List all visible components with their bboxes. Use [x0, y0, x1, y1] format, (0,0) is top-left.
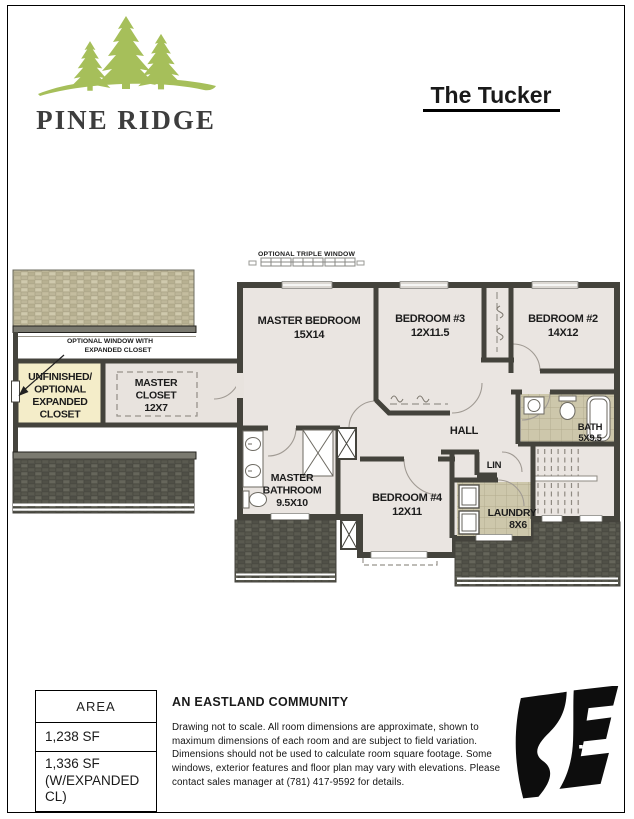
stair-landing-rail — [535, 476, 597, 481]
bedroom4-label: BEDROOM #4 — [372, 492, 443, 504]
area-table: AREA 1,238 SF 1,336 SF (W/EXPANDED CL) — [35, 690, 157, 812]
unfinished-closet-line2: OPTIONAL — [34, 384, 87, 396]
pine-ridge-logo: PINE RIDGE — [26, 12, 226, 136]
plan-title: The Tucker — [388, 82, 594, 109]
bedroom3-label: BEDROOM #3 — [395, 313, 465, 325]
laundry-dims: 8X6 — [509, 519, 527, 531]
unfinished-closet-line4: CLOSET — [40, 409, 82, 421]
community-heading: AN EASTLAND COMMUNITY — [172, 695, 348, 709]
master-bedroom-dims: 15X14 — [294, 329, 325, 341]
hall-label: HALL — [450, 425, 479, 437]
area-table-header: AREA — [36, 691, 156, 723]
bath-sink-bowl — [528, 400, 540, 412]
brand-name: PINE RIDGE — [26, 105, 226, 136]
roof-cornice-lower — [13, 452, 196, 459]
unfinished-closet-line3: EXPANDED — [32, 396, 88, 408]
roof-edge-line — [13, 509, 194, 511]
master-bathroom-line1: MASTER — [271, 472, 314, 484]
toilet-icon — [560, 403, 575, 420]
master-bathroom-line2: BATHROOM — [263, 485, 322, 497]
lin-label: LIN — [487, 460, 502, 471]
master-closet-line1: MASTER — [135, 377, 178, 389]
sink-icon — [246, 465, 261, 478]
master-closet-line2: CLOSET — [136, 390, 178, 402]
optional-window — [12, 381, 20, 402]
master-bedroom-label: MASTER BEDROOM — [258, 315, 361, 327]
brochure-page: PINE RIDGE The Tucker — [0, 0, 634, 819]
area-row-expanded: 1,336 SF (W/EXPANDED CL) — [36, 752, 156, 811]
triple-window-label: OPTIONAL TRIPLE WINDOW — [258, 251, 356, 258]
sink-icon — [246, 438, 261, 451]
roof-below-master-bath — [235, 520, 336, 582]
disclaimer-text: Drawing not to scale. All room dimension… — [172, 721, 513, 790]
bedroom4-dims: 12X11 — [392, 506, 422, 518]
triple-window-annotation: OPTIONAL TRIPLE WINDOW — [249, 251, 364, 266]
area-expanded-value: 1,336 SF — [45, 756, 156, 773]
eastland-logo-sail — [514, 692, 570, 799]
unfinished-closet-line1: UNFINISHED/ — [28, 371, 92, 383]
master-closet-dims: 12X7 — [144, 402, 168, 414]
area-row-base: 1,238 SF — [36, 723, 156, 752]
roof-cornice-upper — [13, 326, 196, 333]
eastland-logo — [506, 686, 624, 804]
triple-window-symbol — [261, 258, 355, 266]
bedroom3-dims: 12X11.5 — [411, 327, 449, 339]
laundry-label: LAUNDRY — [488, 507, 537, 519]
expanded-window-note-line2: EXPANDED CLOSET — [85, 347, 153, 354]
roof-edge-line — [13, 504, 194, 507]
floor-plan-svg: OPTIONAL WINDOW WITH EXPANDED CLOSET OPT… — [0, 240, 634, 608]
roof-upper-left — [13, 270, 194, 326]
expanded-window-note-line1: OPTIONAL WINDOW WITH — [67, 338, 153, 345]
bath-dims: 5X9.5 — [578, 433, 602, 444]
bedroom2-dims: 14X12 — [548, 327, 578, 339]
optional-bay-dashed — [363, 558, 437, 565]
bedroom2-label: BEDROOM #2 — [528, 313, 598, 325]
bath-label: BATH — [578, 422, 603, 433]
area-expanded-note: (W/EXPANDED CL) — [45, 773, 156, 806]
master-bathroom-dims: 9.5X10 — [276, 497, 308, 509]
eastland-logo-dot — [579, 745, 583, 749]
toilet-tank — [559, 396, 576, 401]
pine-trees-icon — [26, 12, 226, 100]
toilet-tank — [243, 491, 249, 508]
